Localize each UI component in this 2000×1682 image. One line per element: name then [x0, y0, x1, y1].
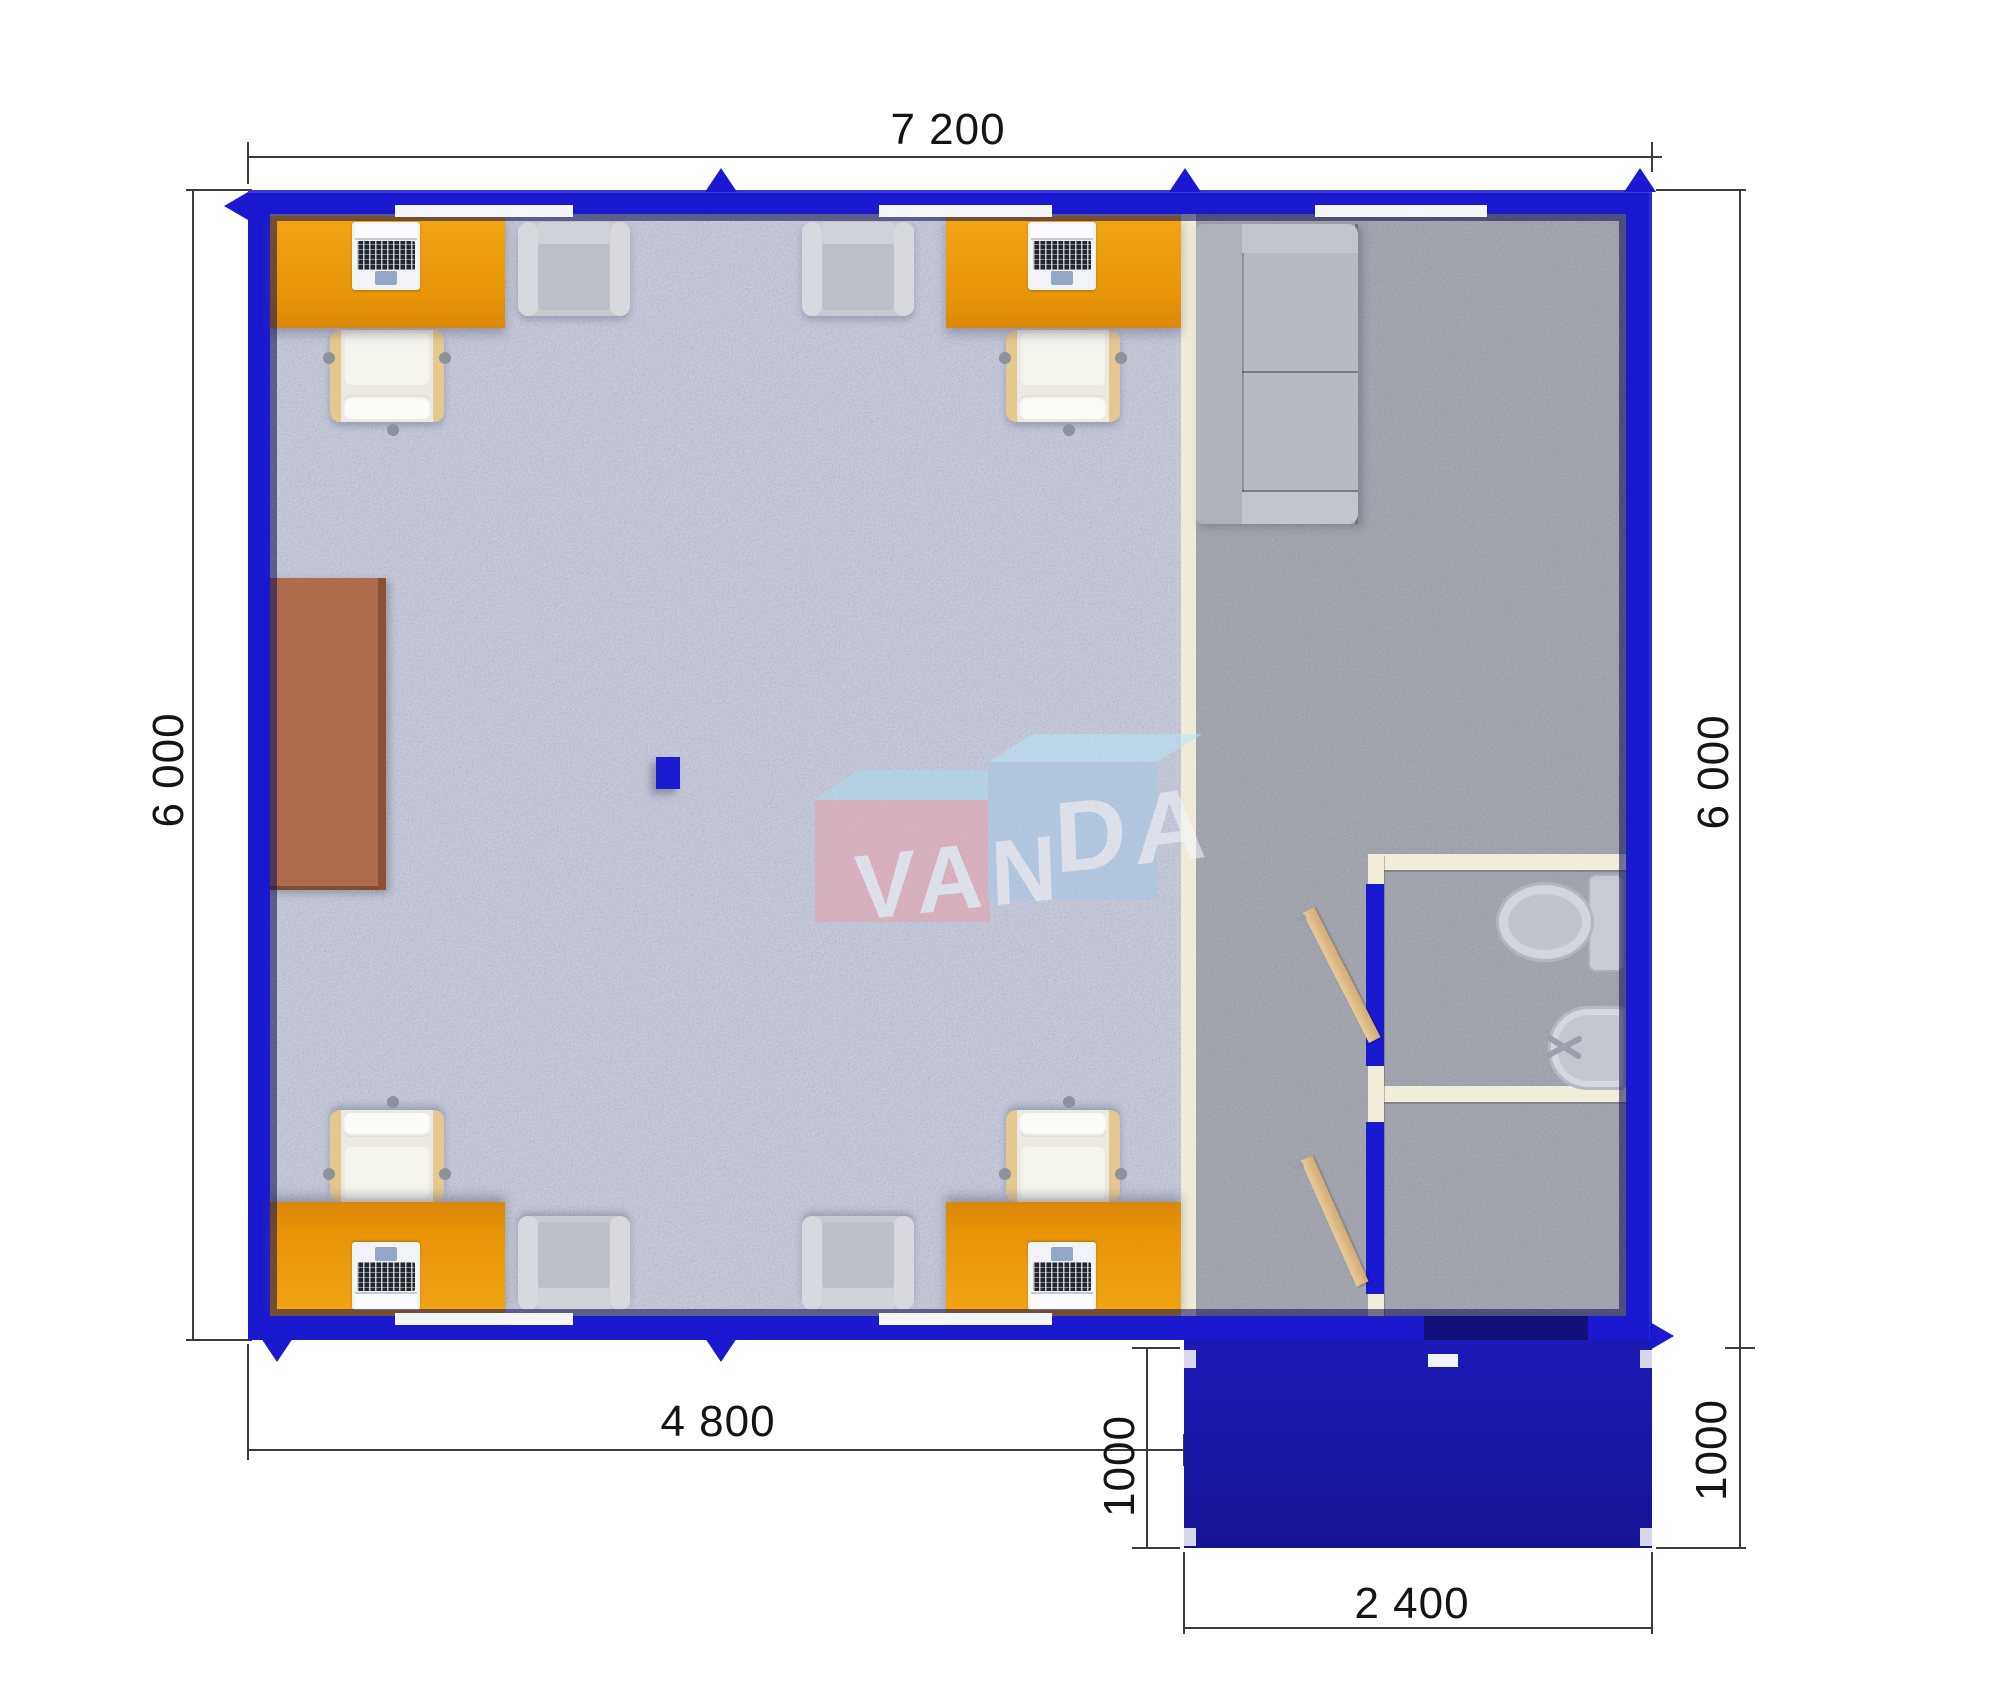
dim-tick: [186, 189, 252, 191]
entrance-porch: [1184, 1340, 1652, 1548]
module-marker-icon: [261, 1338, 293, 1362]
porch-corner-fitting: [1184, 1350, 1196, 1368]
chair-seat: [345, 333, 429, 385]
partition-wall: [1181, 214, 1196, 1316]
column-marker: [656, 757, 680, 789]
window: [879, 205, 1052, 217]
guest-armchair: [518, 1216, 630, 1310]
laptop-trackpad: [1051, 271, 1073, 285]
office-chair: [1006, 1110, 1120, 1202]
module-marker-icon: [705, 1338, 737, 1362]
laptop-trackpad: [375, 271, 397, 285]
door-threshold: [1428, 1354, 1458, 1367]
dim-ext: [247, 1344, 249, 1460]
sofa-armrest: [1242, 492, 1358, 524]
interior: VAN DA: [270, 214, 1626, 1316]
desk-bottom-left: [270, 1202, 505, 1316]
laptop: [352, 1242, 420, 1310]
sofa-cushion: [1242, 373, 1358, 492]
dim-tick: [1132, 1547, 1180, 1549]
window: [395, 1313, 573, 1325]
sofa-backrest: [1196, 224, 1242, 524]
desk-top-left: [270, 216, 505, 328]
dim-label-right: 6 000: [1689, 714, 1739, 829]
module-marker-icon: [705, 168, 737, 192]
porch-corner-fitting: [1640, 1528, 1652, 1546]
dim-line-porch-left: [1146, 1348, 1148, 1548]
chair-caster: [387, 1096, 399, 1108]
dim-line-top: [248, 156, 1662, 158]
module-marker-icon: [1650, 1322, 1674, 1350]
dim-tick: [1132, 1347, 1180, 1349]
desk-bottom-right: [946, 1202, 1181, 1316]
chair-caster: [1115, 1168, 1127, 1180]
dim-label-porch-left: 1000: [1095, 1415, 1145, 1517]
dim-ext: [1183, 1552, 1185, 1634]
chair-caster: [1063, 424, 1075, 436]
sofa-armrest: [1242, 224, 1358, 253]
porch-corner-fitting: [1184, 1528, 1196, 1546]
sink: [1548, 1006, 1626, 1090]
chair-caster: [999, 1168, 1011, 1180]
dim-label-porch-right: 1000: [1687, 1399, 1737, 1501]
dim-line-right: [1739, 190, 1741, 1548]
window: [879, 1313, 1052, 1325]
desk-top-right: [946, 216, 1181, 328]
dim-tick: [1725, 1347, 1755, 1349]
chair-caster: [1115, 352, 1127, 364]
toilet-bowl: [1496, 882, 1594, 962]
porch-corner-fitting: [1640, 1350, 1652, 1368]
chair-caster: [323, 352, 335, 364]
sofa: [1196, 224, 1358, 524]
sofa-cushion: [1242, 253, 1358, 373]
chair-backrest: [343, 395, 431, 419]
dim-ext: [1656, 189, 1746, 191]
chair-caster: [387, 424, 399, 436]
chair-caster: [999, 352, 1011, 364]
office-chair: [330, 330, 444, 422]
dim-tick: [186, 1339, 252, 1341]
module-marker-icon: [1169, 168, 1201, 192]
laptop: [1028, 1242, 1096, 1310]
laptop-screen: [1031, 224, 1093, 240]
dim-label-2400: 2 400: [1354, 1579, 1469, 1629]
dim-tick: [247, 142, 249, 184]
guest-armchair: [518, 222, 630, 316]
laptop-keyboard: [357, 241, 415, 270]
dim-line-4800: [248, 1449, 1184, 1451]
dim-ext: [1656, 1547, 1746, 1549]
laptop: [352, 222, 420, 290]
bathroom-door-panel: [1366, 1122, 1384, 1294]
guest-armchair: [802, 222, 914, 316]
chair-caster: [439, 1168, 451, 1180]
laptop-keyboard: [1033, 241, 1091, 270]
window: [395, 205, 573, 217]
dim-label-top: 7 200: [890, 105, 1005, 155]
chair-caster: [439, 352, 451, 364]
office-chair: [1006, 330, 1120, 422]
dim-ext: [1651, 1552, 1653, 1634]
chair-caster: [1063, 1096, 1075, 1108]
entrance-door: [1424, 1316, 1588, 1340]
guest-armchair: [802, 1216, 914, 1310]
meeting-table: [270, 578, 386, 890]
chair-caster: [323, 1168, 335, 1180]
floor-plan-canvas: 7 200 6 000 6 000 1000 4 800 1000 2 400: [0, 0, 2000, 1682]
office-chair: [330, 1110, 444, 1202]
laptop: [1028, 222, 1096, 290]
dim-label-left: 6 000: [144, 712, 194, 827]
toilet: [1496, 876, 1624, 972]
laptop-screen: [355, 224, 417, 240]
dim-label-4800: 4 800: [660, 1397, 775, 1447]
module-marker-icon: [224, 192, 248, 220]
bathroom-wall-top: [1368, 854, 1626, 870]
window: [1315, 205, 1487, 217]
module-marker-icon: [1624, 168, 1656, 192]
